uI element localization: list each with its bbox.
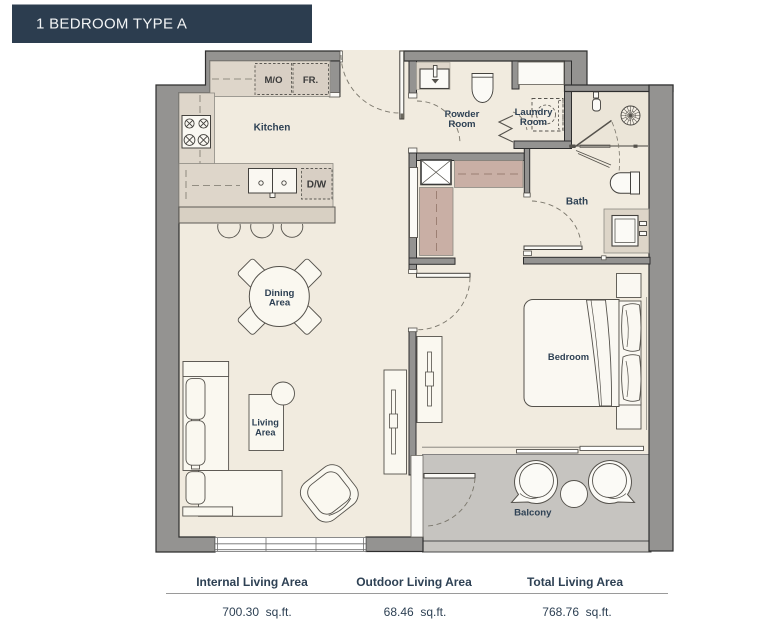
svg-text:Internal Living Area: Internal Living Area	[196, 575, 308, 589]
svg-text:Living: Living	[252, 418, 279, 428]
svg-text:1 BEDROOM TYPE A: 1 BEDROOM TYPE A	[36, 16, 187, 33]
svg-text:Outdoor Living Area: Outdoor Living Area	[356, 575, 472, 589]
svg-text:Room: Room	[448, 119, 475, 130]
svg-text:Room: Room	[520, 117, 547, 128]
svg-text:D/W: D/W	[307, 180, 327, 191]
svg-text:Balcony: Balcony	[514, 508, 552, 519]
svg-text:M/O: M/O	[265, 75, 283, 86]
svg-text:Bath: Bath	[566, 197, 588, 208]
svg-text:Bedroom: Bedroom	[548, 351, 589, 362]
svg-text:768.76 sq.ft.: 768.76 sq.ft.	[542, 605, 611, 619]
svg-text:Area: Area	[269, 298, 291, 309]
svg-text:FR.: FR.	[303, 75, 318, 86]
svg-text:Total Living Area: Total Living Area	[527, 575, 623, 589]
svg-text:Kitchen: Kitchen	[254, 123, 291, 134]
svg-text:Area: Area	[255, 428, 276, 438]
svg-text:700.30 sq.ft.: 700.30 sq.ft.	[222, 605, 291, 619]
svg-text:68.46 sq.ft.: 68.46 sq.ft.	[384, 605, 447, 619]
